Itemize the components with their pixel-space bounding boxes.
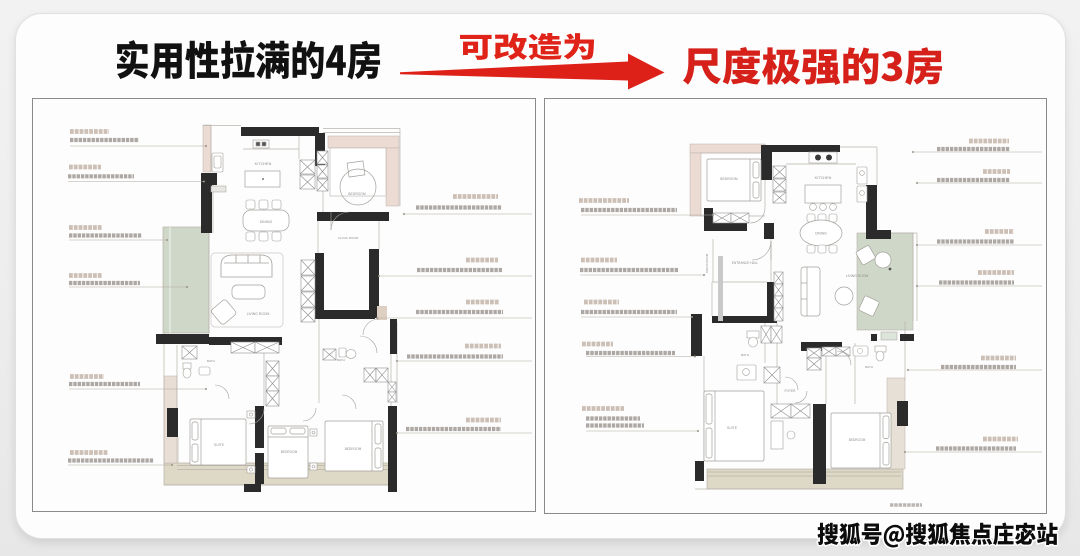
svg-text:BEDROOM: BEDROOM	[281, 450, 298, 454]
svg-text:DINING: DINING	[815, 232, 827, 236]
svg-text:SUITE: SUITE	[727, 426, 738, 430]
svg-text:KITCHEN: KITCHEN	[255, 162, 272, 166]
svg-text:BATH: BATH	[207, 359, 215, 363]
svg-text:BEDROOM: BEDROOM	[348, 192, 366, 196]
svg-text:BATH: BATH	[865, 365, 873, 369]
svg-text:KITCHEN: KITCHEN	[815, 176, 832, 180]
svg-text:BEDROOM: BEDROOM	[849, 438, 866, 442]
svg-text:LIVING ROOM: LIVING ROOM	[846, 274, 869, 278]
svg-text:ENTRANCE HALL: ENTRANCE HALL	[732, 261, 759, 265]
svg-text:BATH: BATH	[741, 353, 749, 357]
svg-text:LIVING ROOM: LIVING ROOM	[247, 312, 270, 316]
svg-text:DINING: DINING	[260, 220, 273, 224]
svg-text:DRESS ROOM: DRESS ROOM	[705, 253, 709, 273]
svg-text:CLOAK ROOM: CLOAK ROOM	[338, 236, 359, 240]
svg-text:BATH: BATH	[337, 358, 345, 362]
svg-text:SUITE: SUITE	[214, 443, 225, 447]
svg-text:BEDROOM: BEDROOM	[720, 177, 738, 181]
svg-text:BEDROOM: BEDROOM	[345, 447, 362, 451]
svg-text:FOYER: FOYER	[785, 389, 797, 393]
